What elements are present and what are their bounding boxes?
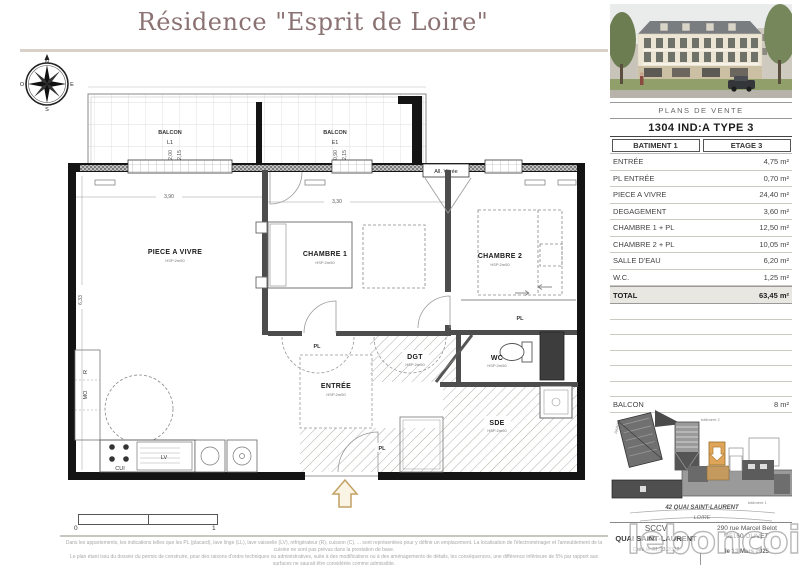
batiment-cell: BATIMENT 1 <box>612 139 700 152</box>
leboncoin-watermark: leboncoin <box>627 518 799 562</box>
unit-reference: 1304 IND:A TYPE 3 <box>610 119 792 137</box>
balcony-right-label: BALCON <box>323 130 347 136</box>
entrance-arrow-icon <box>333 480 357 507</box>
hsp-dgt: HSP:2m50 <box>405 362 425 367</box>
compass-south-label: S <box>45 107 49 113</box>
shower <box>540 386 572 418</box>
empty-row <box>610 335 792 351</box>
empty-row <box>610 320 792 336</box>
floor-plan: BALCON L1 2,00 2,15 BALCON E1 0,90 2,15 … <box>60 80 600 512</box>
etage-cell: ETAGE 3 <box>703 139 791 152</box>
map-batiment1-label: bâtiment 1 <box>748 500 767 505</box>
area-row-value: 6,20 m² <box>764 256 789 265</box>
area-row-value: 12,50 m² <box>759 223 789 232</box>
label-pl-chambre2: PL <box>516 316 524 322</box>
site-map: PARC bâtiment 2 bâtiment 1 42 QUAI SAINT… <box>610 396 792 522</box>
label-r: R <box>83 370 89 374</box>
title-underline <box>20 49 608 52</box>
area-rows: ENTRÉE 4,75 m² PL ENTRÉE 0,70 m² PIECE A… <box>610 154 792 286</box>
bottom-divider-line <box>60 535 608 537</box>
label-chambre1: CHAMBRE 1 <box>303 251 347 258</box>
empty-row <box>610 351 792 367</box>
area-row: PL ENTRÉE 0,70 m² <box>610 171 792 188</box>
appliance-2 <box>227 440 257 472</box>
scale-bar <box>78 514 218 525</box>
label-pl-entree: PL <box>378 446 386 452</box>
area-row-label: W.C. <box>613 273 629 282</box>
pedestrian <box>640 76 644 85</box>
total-row: TOTAL 63,45 m² <box>610 286 792 304</box>
compass-west-label: O <box>20 82 25 88</box>
dim-6-33: 6,33 <box>78 295 84 305</box>
dim-3-30: 3,30 <box>332 199 342 205</box>
legal-disclaimer: Dans les appartements, les indications t… <box>62 540 606 568</box>
radiators <box>95 180 576 185</box>
closet-chambre1-dashed <box>363 225 425 288</box>
balcony-left-label: BALCON <box>158 130 182 136</box>
area-row-value: 10,05 m² <box>759 240 789 249</box>
area-row-value: 0,70 m² <box>764 174 789 183</box>
label-sde: SDE <box>489 420 504 427</box>
empty-row <box>610 366 792 382</box>
area-row: ENTRÉE 4,75 m² <box>610 154 792 171</box>
total-value: 63,45 m² <box>759 291 789 300</box>
balcony-right-code: E1 <box>332 140 339 146</box>
balcony-left-dim-a: 2,00 <box>168 150 174 160</box>
dim-3-90: 3,90 <box>164 194 174 200</box>
batiment-etage-row: BATIMENT 1 ETAGE 3 <box>610 137 792 154</box>
empty-row <box>610 304 792 320</box>
label-dgt: DGT <box>407 354 423 361</box>
map-building-2 <box>675 422 699 470</box>
area-row: CHAMBRE 1 + PL 12,50 m² <box>610 220 792 237</box>
label-pl-chambre1: PL <box>313 344 321 350</box>
building-photo <box>610 4 792 98</box>
area-row-value: 3,60 m² <box>764 207 789 216</box>
label-cui: CUI <box>115 466 125 472</box>
area-row-value: 24,40 m² <box>759 190 789 199</box>
label-entree: ENTRÉE <box>321 381 351 390</box>
label-chambre2: CHAMBRE 2 <box>478 253 522 260</box>
hsp-entree: HSP:2m50 <box>326 392 346 397</box>
balcony-right-dim-a: 0,90 <box>333 150 339 160</box>
map-highlighted-unit <box>709 442 725 465</box>
empty-row <box>610 382 792 398</box>
area-row-label: CHAMBRE 2 + PL <box>613 240 674 249</box>
technical-shaft <box>540 332 564 380</box>
area-row: CHAMBRE 2 + PL 10,05 m² <box>610 237 792 254</box>
hsp-chambre1: HSP:2m50 <box>315 260 335 265</box>
tiled-floor-hatch <box>300 336 577 472</box>
area-row-value: 1,25 m² <box>764 273 789 282</box>
disclaimer-line2: Le plan étant issu du dossier du permis … <box>62 554 606 568</box>
label-lv: LV <box>161 455 168 461</box>
label-mo: MO <box>83 390 89 400</box>
area-row-label: DEGAGEMENT <box>613 207 666 216</box>
hsp-wc: HSP:2m50 <box>487 363 507 368</box>
appliance-1 <box>195 440 225 472</box>
balcony-right-dim-b: 2,15 <box>342 150 348 160</box>
area-row-label: SALLE D'EAU <box>613 256 661 265</box>
dining-table-dashed <box>105 375 173 443</box>
area-row-label: PL ENTRÉE <box>613 174 654 183</box>
hsp-piece-a-vivre: HSP:2m50 <box>165 258 185 263</box>
area-row-label: CHAMBRE 1 + PL <box>613 223 674 232</box>
compass-north-label: N <box>45 60 49 66</box>
label-piece-a-vivre: PIECE A VIVRE <box>148 249 202 256</box>
plans-de-vente-header: PLANS DE VENTE <box>610 102 792 119</box>
area-row: SALLE D'EAU 6,20 m² <box>610 253 792 270</box>
balcony <box>88 87 426 164</box>
area-row: DEGAGEMENT 3,60 m² <box>610 204 792 221</box>
kitchen <box>75 350 257 472</box>
area-row: W.C. 1,25 m² <box>610 270 792 287</box>
balcony-divider-wall <box>256 102 262 164</box>
map-batiment2-label: bâtiment 2 <box>701 417 720 422</box>
area-row-value: 4,75 m² <box>764 157 789 166</box>
area-row-label: ENTRÉE <box>613 157 643 166</box>
balcony-left-dim-b: 2,15 <box>177 150 183 160</box>
disclaimer-line1: Dans les appartements, les indications t… <box>62 540 606 554</box>
area-row: PIECE A VIVRE 24,40 m² <box>610 187 792 204</box>
dimension-lines <box>76 176 445 470</box>
hsp-sde: HSP:2m50 <box>487 428 507 433</box>
page-title: Résidence "Esprit de Loire" <box>20 8 606 36</box>
total-label: TOTAL <box>613 291 637 300</box>
balcony-left-code: L1 <box>167 140 173 146</box>
label-wc: WC <box>491 355 503 362</box>
scale-zero-label: 0 <box>74 525 78 532</box>
hsp-chambre2: HSP:2m50 <box>490 262 510 267</box>
area-row-label: PIECE A VIVRE <box>613 190 666 199</box>
scale-one-label: 1 <box>212 525 216 532</box>
sales-table: PLANS DE VENTE 1304 IND:A TYPE 3 BATIMEN… <box>610 102 792 413</box>
toilet <box>500 342 532 362</box>
